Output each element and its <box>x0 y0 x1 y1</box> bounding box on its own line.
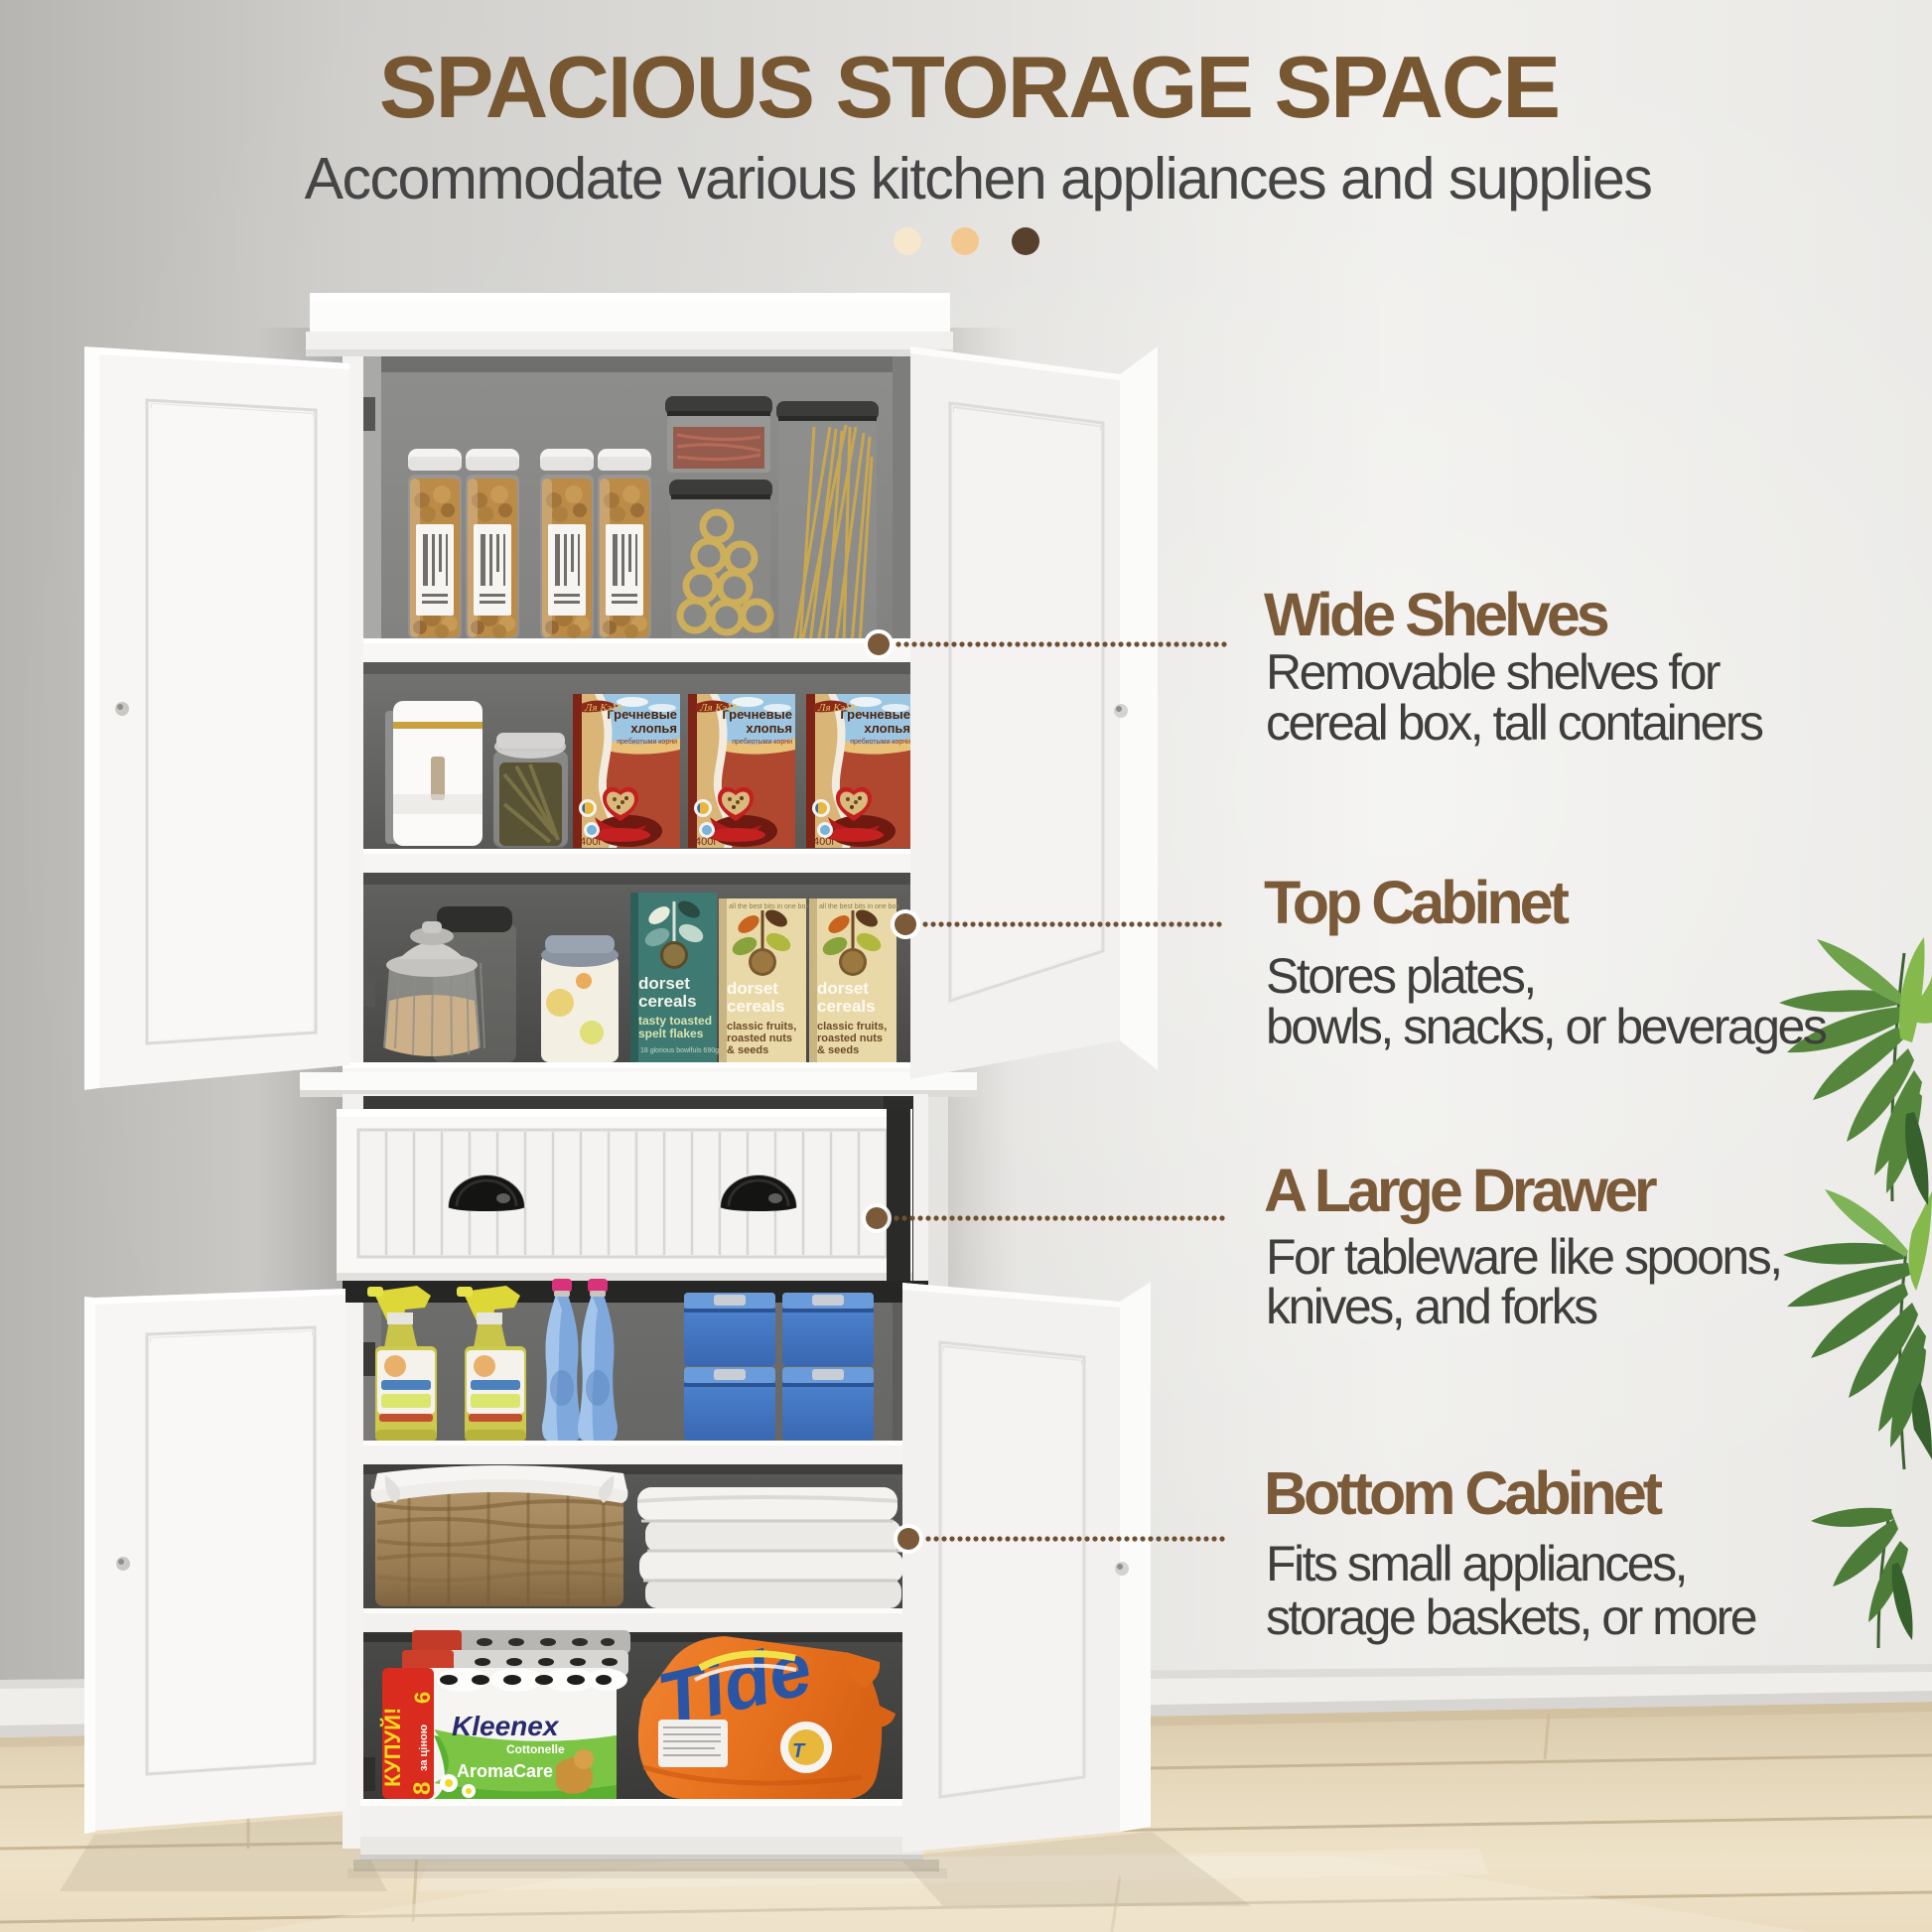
svg-text:T: T <box>792 1740 806 1762</box>
svg-text:tasty toasted: tasty toasted <box>638 1014 712 1028</box>
svg-text:knives, and forks: knives, and forks <box>1266 1279 1597 1334</box>
svg-text:For tableware like spoons,: For tableware like spoons, <box>1266 1229 1781 1285</box>
svg-text:SPACIOUS STORAGE SPACE: SPACIOUS STORAGE SPACE <box>379 38 1559 136</box>
svg-text:dorset: dorset <box>638 974 690 993</box>
svg-text:AromaCare: AromaCare <box>457 1761 553 1781</box>
svg-text:bowls, snacks, or beverages: bowls, snacks, or beverages <box>1266 999 1827 1054</box>
svg-text:18 glorious bowlfuls 690g: 18 glorious bowlfuls 690g <box>640 1047 719 1054</box>
svg-text:Top Cabinet: Top Cabinet <box>1264 869 1570 936</box>
svg-text:cereals: cereals <box>638 992 697 1011</box>
svg-text:Cottonelle: Cottonelle <box>506 1742 565 1756</box>
svg-text:за ціною: за ціною <box>418 1725 430 1771</box>
svg-text:storage baskets, or more: storage baskets, or more <box>1266 1589 1756 1645</box>
svg-text:Wide Shelves: Wide Shelves <box>1264 581 1608 648</box>
svg-text:cereal box, tall containers: cereal box, tall containers <box>1266 695 1763 751</box>
svg-text:Bottom Cabinet: Bottom Cabinet <box>1264 1459 1663 1527</box>
svg-text:Accommodate various kitchen ap: Accommodate various kitchen appliances a… <box>305 146 1652 211</box>
svg-text:КУПУЙ!: КУПУЙ! <box>380 1708 405 1787</box>
svg-text:Removable shelves for: Removable shelves for <box>1266 644 1721 700</box>
svg-text:8: 8 <box>409 1782 436 1795</box>
svg-text:Fits small appliances,: Fits small appliances, <box>1266 1536 1686 1591</box>
svg-text:6: 6 <box>410 1692 435 1704</box>
svg-text:spelt flakes: spelt flakes <box>638 1027 704 1040</box>
svg-text:Stores plates,: Stores plates, <box>1266 948 1535 1004</box>
svg-text:Kleenex: Kleenex <box>452 1711 560 1741</box>
svg-text:A Large Drawer: A Large Drawer <box>1264 1157 1657 1224</box>
